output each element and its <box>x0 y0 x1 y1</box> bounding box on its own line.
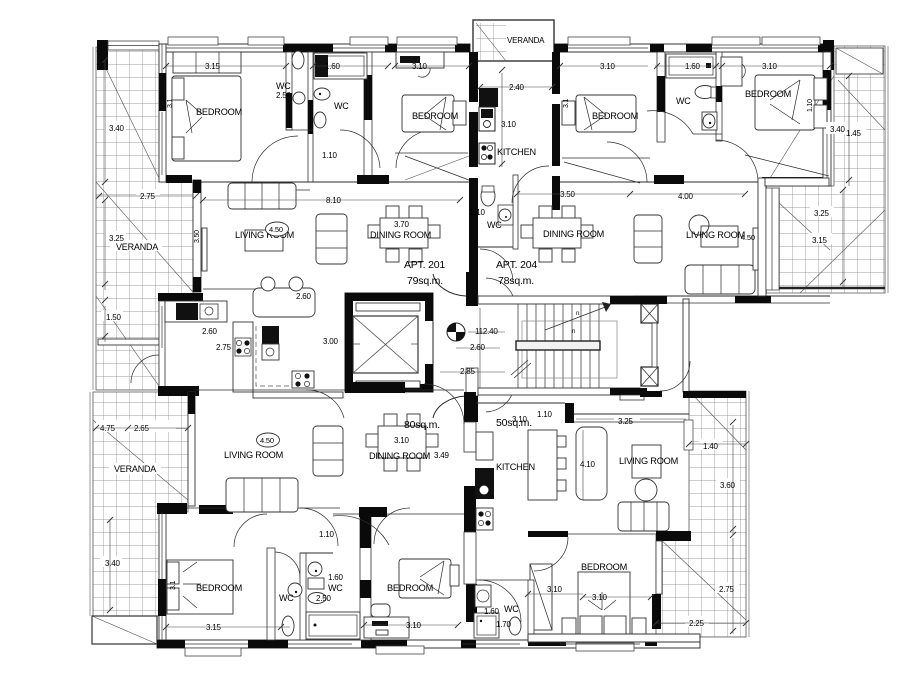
svg-text:3.15: 3.15 <box>205 62 221 71</box>
svg-text:BEDROOM: BEDROOM <box>592 111 638 121</box>
svg-text:BEDROOM: BEDROOM <box>196 583 242 593</box>
svg-text:VERANDA: VERANDA <box>114 464 156 474</box>
svg-text:78sq.m.: 78sq.m. <box>498 275 534 287</box>
svg-text:2.50: 2.50 <box>316 594 332 603</box>
svg-text:2.60: 2.60 <box>202 327 218 336</box>
svg-text:3.1: 3.1 <box>563 99 570 108</box>
svg-text:3.15: 3.15 <box>206 623 222 632</box>
svg-text:3.60: 3.60 <box>720 481 736 490</box>
svg-text:VERANDA: VERANDA <box>116 242 158 252</box>
svg-text:WC: WC <box>279 593 294 603</box>
svg-text:8.10: 8.10 <box>326 196 342 205</box>
svg-text:3.1: 3.1 <box>170 581 177 590</box>
svg-text:3.50: 3.50 <box>194 230 201 243</box>
svg-text:80sq.m.: 80sq.m. <box>404 419 440 431</box>
svg-text:2.75: 2.75 <box>140 192 156 201</box>
svg-text:2.85: 2.85 <box>460 367 476 376</box>
svg-text:3.40: 3.40 <box>105 559 121 568</box>
svg-text:DINING ROOM: DINING ROOM <box>370 230 431 240</box>
svg-text:VERANDA: VERANDA <box>507 36 545 45</box>
svg-text:LIVING ROOM: LIVING ROOM <box>224 450 283 460</box>
svg-text:3.15: 3.15 <box>812 236 828 245</box>
svg-text:4.50: 4.50 <box>269 225 283 234</box>
svg-text:WC: WC <box>487 220 502 230</box>
svg-text:1.10: 1.10 <box>807 99 814 112</box>
svg-text:n: n <box>576 311 579 317</box>
svg-text:n: n <box>572 329 575 335</box>
svg-text:1.50: 1.50 <box>106 313 122 322</box>
svg-text:WC: WC <box>276 81 291 91</box>
svg-text:WC: WC <box>334 101 349 111</box>
svg-text:LIVING ROOM: LIVING ROOM <box>619 456 678 466</box>
svg-text:3.25: 3.25 <box>618 417 634 426</box>
svg-text:3.10: 3.10 <box>592 593 608 602</box>
svg-text:1.40: 1.40 <box>703 442 719 451</box>
svg-text:3.00: 3.00 <box>323 337 339 346</box>
svg-text:2.10: 2.10 <box>470 208 486 217</box>
svg-text:3.25: 3.25 <box>814 209 830 218</box>
svg-text:3.50: 3.50 <box>560 190 576 199</box>
svg-text:2.75: 2.75 <box>719 585 735 594</box>
svg-text:1.60: 1.60 <box>685 62 701 71</box>
svg-text:3.40: 3.40 <box>830 125 846 134</box>
svg-text:3.10: 3.10 <box>394 436 410 445</box>
svg-text:2.40: 2.40 <box>509 83 525 92</box>
svg-text:WC: WC <box>328 583 343 593</box>
svg-text:WC: WC <box>504 604 519 614</box>
svg-text:50sq.m.: 50sq.m. <box>496 417 532 429</box>
svg-text:1.45: 1.45 <box>846 129 862 138</box>
svg-text:2.60: 2.60 <box>296 292 312 301</box>
svg-text:3.10: 3.10 <box>762 62 778 71</box>
svg-text:3.40: 3.40 <box>109 124 125 133</box>
svg-text:2.65: 2.65 <box>134 424 150 433</box>
svg-text:1.60: 1.60 <box>328 573 344 582</box>
svg-text:1.10: 1.10 <box>322 151 338 160</box>
svg-text:KITCHEN: KITCHEN <box>497 147 536 157</box>
svg-text:BEDROOM: BEDROOM <box>196 107 242 117</box>
svg-text:DINING ROOM: DINING ROOM <box>543 229 604 239</box>
svg-text:APT. 201: APT. 201 <box>404 259 445 271</box>
svg-text:4.75: 4.75 <box>100 424 116 433</box>
svg-text:APT. 204: APT. 204 <box>496 259 537 271</box>
svg-text:BEDROOM: BEDROOM <box>412 111 458 121</box>
svg-text:3.10: 3.10 <box>412 62 428 71</box>
svg-text:BEDROOM: BEDROOM <box>581 562 627 572</box>
svg-text:2.60: 2.60 <box>470 343 486 352</box>
svg-text:BEDROOM: BEDROOM <box>387 583 433 593</box>
svg-text:2.25: 2.25 <box>689 619 705 628</box>
svg-text:1.60: 1.60 <box>325 62 341 71</box>
svg-text:112.40: 112.40 <box>475 327 498 336</box>
svg-text:3.10: 3.10 <box>547 585 563 594</box>
svg-text:1.10: 1.10 <box>537 410 553 419</box>
svg-text:2.75: 2.75 <box>216 343 232 352</box>
svg-text:WC: WC <box>676 96 691 106</box>
svg-text:3.49: 3.49 <box>434 451 450 460</box>
svg-text:79sq.m.: 79sq.m. <box>407 275 443 287</box>
svg-text:4.00: 4.00 <box>678 192 694 201</box>
svg-text:1.10: 1.10 <box>319 530 335 539</box>
svg-text:DINING ROOM: DINING ROOM <box>369 451 430 461</box>
svg-text:BEDROOM: BEDROOM <box>745 89 791 99</box>
svg-text:1.60: 1.60 <box>484 607 500 616</box>
svg-text:3.10: 3.10 <box>600 62 616 71</box>
svg-text:4.10: 4.10 <box>580 460 596 469</box>
svg-text:KITCHEN: KITCHEN <box>496 462 535 472</box>
svg-text:4.50: 4.50 <box>741 233 755 242</box>
svg-text:4.50: 4.50 <box>260 436 274 445</box>
svg-text:3.10: 3.10 <box>406 621 422 630</box>
svg-text:LIVING ROOM: LIVING ROOM <box>686 230 745 240</box>
svg-text:3.1: 3.1 <box>167 99 174 108</box>
svg-text:2.50: 2.50 <box>276 91 292 100</box>
svg-text:3.10: 3.10 <box>501 120 517 129</box>
svg-text:3.70: 3.70 <box>394 220 410 229</box>
svg-text:1.70: 1.70 <box>496 620 512 629</box>
